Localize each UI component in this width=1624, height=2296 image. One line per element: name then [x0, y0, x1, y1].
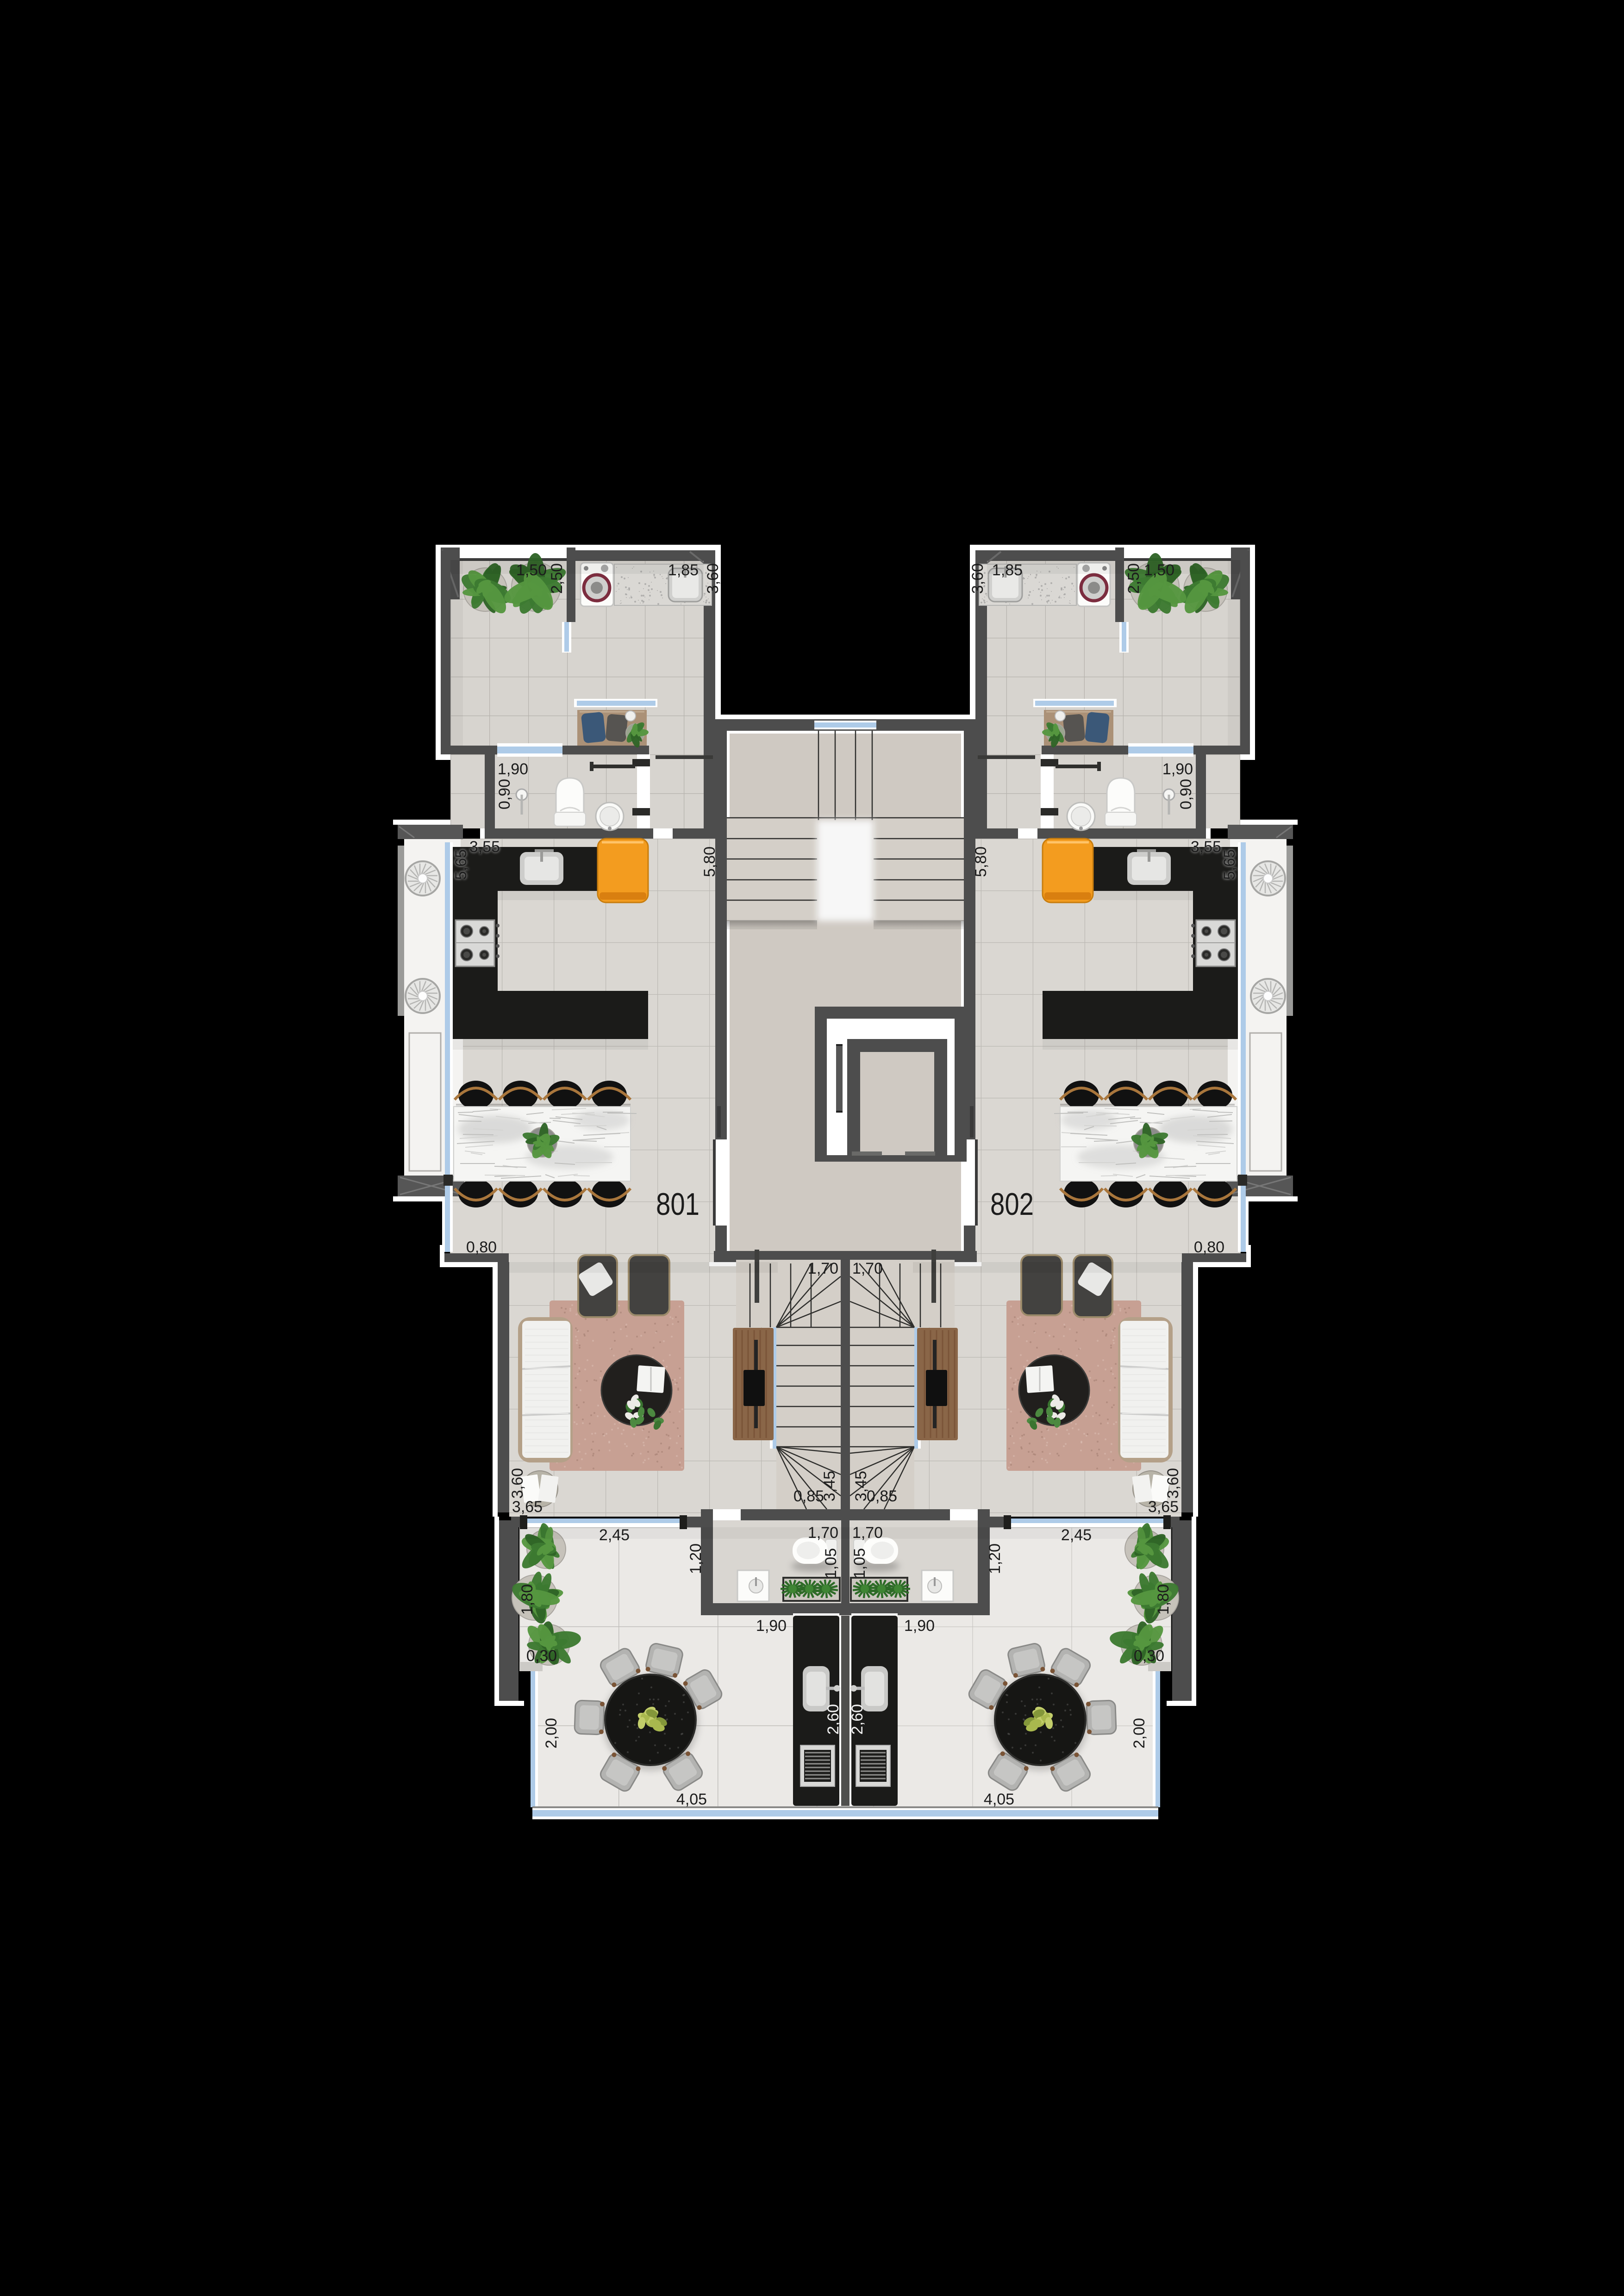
- svg-text:801: 801: [656, 1187, 700, 1222]
- svg-text:0,85: 0,85: [793, 1487, 824, 1505]
- svg-text:0,85: 0,85: [867, 1487, 897, 1505]
- svg-text:3,45: 3,45: [852, 1471, 870, 1501]
- svg-text:1,90: 1,90: [756, 1617, 787, 1635]
- svg-text:1,50: 1,50: [1144, 561, 1174, 579]
- svg-text:3,60: 3,60: [1164, 1468, 1182, 1499]
- svg-text:2,45: 2,45: [1061, 1526, 1092, 1544]
- svg-text:1,90: 1,90: [904, 1617, 935, 1635]
- svg-text:1,70: 1,70: [808, 1260, 838, 1277]
- svg-text:0,90: 0,90: [1177, 779, 1195, 809]
- svg-text:0,90: 0,90: [496, 779, 513, 809]
- svg-text:5,65: 5,65: [1221, 849, 1238, 880]
- svg-text:5,65: 5,65: [452, 849, 470, 880]
- svg-text:3,65: 3,65: [1148, 1498, 1179, 1516]
- svg-text:3,60: 3,60: [509, 1468, 526, 1499]
- svg-text:5,80: 5,80: [972, 846, 990, 877]
- svg-text:5,80: 5,80: [701, 846, 718, 877]
- svg-text:4,05: 4,05: [984, 1791, 1014, 1808]
- svg-text:1,50: 1,50: [516, 561, 547, 579]
- svg-text:2,60: 2,60: [849, 1704, 866, 1735]
- svg-text:2,50: 2,50: [548, 563, 566, 594]
- svg-text:3,60: 3,60: [704, 563, 722, 594]
- svg-text:1,05: 1,05: [851, 1548, 868, 1579]
- svg-text:0,80: 0,80: [1194, 1238, 1224, 1256]
- svg-text:1,20: 1,20: [986, 1543, 1004, 1574]
- svg-text:0,30: 0,30: [1134, 1647, 1164, 1665]
- svg-text:3,55: 3,55: [1191, 838, 1221, 856]
- svg-text:1,20: 1,20: [687, 1543, 705, 1574]
- svg-text:1,85: 1,85: [668, 561, 699, 579]
- svg-text:3,45: 3,45: [821, 1471, 838, 1501]
- svg-text:0,30: 0,30: [526, 1647, 557, 1665]
- svg-text:1,70: 1,70: [852, 1524, 883, 1542]
- svg-text:2,00: 2,00: [543, 1718, 560, 1748]
- svg-text:3,55: 3,55: [469, 838, 500, 856]
- svg-text:2,00: 2,00: [1131, 1718, 1148, 1748]
- svg-text:1,90: 1,90: [1162, 760, 1193, 778]
- svg-text:2,45: 2,45: [599, 1526, 630, 1544]
- svg-text:2,50: 2,50: [1125, 563, 1143, 594]
- svg-text:1,70: 1,70: [852, 1260, 883, 1277]
- svg-text:1,05: 1,05: [822, 1548, 840, 1579]
- svg-text:3,60: 3,60: [969, 563, 987, 594]
- svg-text:4,05: 4,05: [676, 1791, 707, 1808]
- svg-text:1,70: 1,70: [808, 1524, 838, 1542]
- svg-text:0,80: 0,80: [466, 1238, 497, 1256]
- svg-text:1,85: 1,85: [992, 561, 1023, 579]
- svg-text:2,60: 2,60: [824, 1704, 842, 1735]
- svg-text:1,80: 1,80: [518, 1584, 536, 1615]
- svg-text:3,65: 3,65: [512, 1498, 543, 1516]
- svg-text:802: 802: [990, 1187, 1034, 1222]
- svg-text:1,90: 1,90: [498, 760, 528, 778]
- svg-text:1,80: 1,80: [1155, 1584, 1172, 1615]
